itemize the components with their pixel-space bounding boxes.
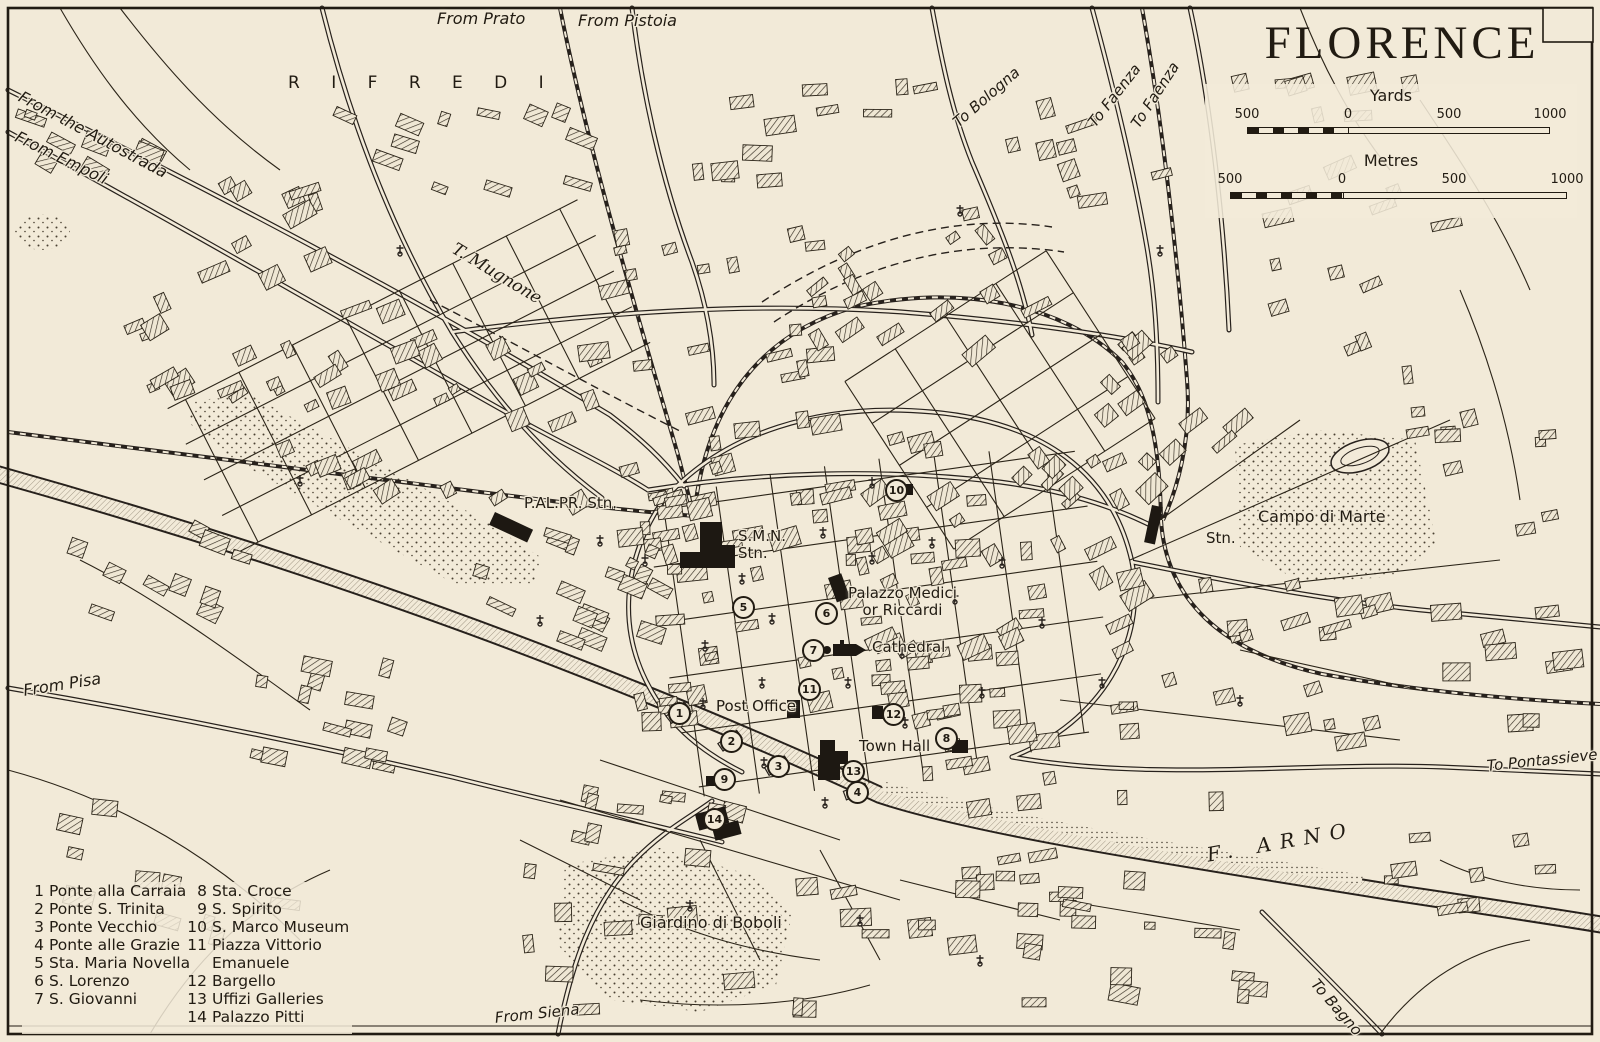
church-symbol (977, 955, 984, 966)
building-block (1028, 848, 1057, 863)
marker-1: 1 (668, 702, 691, 725)
building-block (301, 656, 332, 677)
building-block (56, 813, 83, 834)
scale-metres-label: Metres (1205, 151, 1577, 170)
building-block (598, 280, 629, 300)
map-title: FLORENCE (1262, 16, 1542, 70)
building-block (830, 885, 857, 899)
building-block (1051, 536, 1066, 553)
building-block (1136, 473, 1168, 505)
building-block (1552, 649, 1583, 670)
building-block (660, 795, 673, 804)
building-block (143, 575, 169, 596)
building-block (877, 323, 904, 346)
marker-12: 12 (882, 703, 905, 726)
marker-3: 3 (767, 755, 790, 778)
building-block (816, 105, 839, 116)
marker-7: 7 (802, 639, 825, 662)
building-block (709, 436, 721, 451)
building-block (1535, 605, 1559, 619)
building-block (153, 292, 171, 313)
building-block (1036, 98, 1055, 120)
label-town-hall: Town Hall (859, 738, 930, 755)
building-block (812, 296, 827, 308)
scale-tick: 500 (1218, 172, 1243, 187)
label-rifredi: R I F R E D I (288, 74, 557, 93)
building-block (1020, 873, 1040, 884)
label-campo-di-marte: Campo di Marte (1258, 508, 1386, 526)
building-block (793, 998, 803, 1016)
building-block (947, 935, 977, 955)
building-block (92, 799, 118, 817)
building-block (990, 688, 1005, 697)
building-block (304, 399, 319, 412)
building-block (1138, 453, 1156, 471)
building-block (484, 180, 512, 197)
building-block (580, 389, 599, 411)
label-palpr-stn: P.AL.PR. Stn. (524, 495, 617, 512)
marker-6: 6 (815, 602, 838, 625)
building-block (326, 386, 350, 409)
legend-column-1: 1Ponte alla Carraia 2Ponte S. Trinita 3P… (22, 882, 182, 1008)
corner-inset-box (1543, 8, 1593, 42)
building-block (578, 342, 611, 362)
building-block (486, 597, 515, 617)
building-block (662, 242, 678, 255)
building-block (1006, 137, 1021, 153)
building-block (1409, 832, 1430, 842)
building-block (942, 557, 968, 570)
church-symbol (759, 677, 766, 688)
building-block (1119, 702, 1133, 709)
building-block (956, 881, 981, 898)
label-cathedral: Cathedral (872, 639, 945, 656)
building-block (1431, 217, 1463, 232)
building-block (1213, 688, 1235, 705)
building-block (805, 240, 825, 251)
legend-item: 5Sta. Maria Novella (22, 954, 182, 972)
building-block (802, 84, 827, 97)
legend-item: 4Ponte alle Grazie (22, 936, 182, 954)
building-block (796, 411, 810, 429)
road-inner (632, 8, 714, 385)
scale-bar (1247, 127, 1550, 134)
building-block (605, 567, 625, 582)
building-block (1402, 366, 1413, 384)
building-block (1304, 681, 1323, 697)
building-block (545, 966, 573, 982)
building-block (919, 920, 936, 930)
building-block (911, 552, 935, 564)
building-block (1328, 265, 1345, 280)
church-symbol (769, 613, 776, 624)
building-block (840, 908, 871, 927)
scale-yards-label: Yards (1205, 86, 1577, 105)
building-block (555, 903, 572, 922)
building-block (661, 544, 678, 565)
building-block (807, 277, 828, 297)
building-block (787, 226, 805, 243)
label-palazzo-medici: Palazzo Medici or Riccardi (848, 585, 957, 619)
scale-tick: 0 (1338, 172, 1346, 187)
marker-11: 11 (798, 678, 821, 701)
building-block (298, 685, 312, 704)
road-inner (1262, 912, 1382, 1034)
building-block (667, 564, 681, 574)
building-block (642, 712, 661, 731)
building-block (604, 921, 632, 936)
building-block (856, 557, 869, 576)
building-block (1179, 408, 1208, 434)
building-block (750, 566, 763, 581)
building-block (379, 658, 394, 678)
building-block (261, 747, 288, 767)
park-small-west (14, 214, 70, 250)
scale-tick: 1000 (1533, 107, 1566, 122)
building-block (67, 537, 88, 558)
building-block (477, 108, 500, 120)
legend-item: 13Uffizi Galleries (185, 990, 355, 1008)
legend-item: 1Ponte alla Carraia (22, 882, 182, 900)
building-block (1268, 299, 1289, 316)
building-block (1089, 566, 1112, 590)
church-symbol (1237, 695, 1244, 706)
legend-item: 3Ponte Vecchio (22, 918, 182, 936)
building-block (735, 619, 759, 632)
scale-tick: 1000 (1550, 172, 1583, 187)
building-block (1443, 461, 1463, 476)
building-block (1535, 864, 1556, 874)
building-block (996, 651, 1019, 666)
building-block (391, 134, 419, 154)
building-block (711, 161, 739, 181)
building-block (981, 544, 1003, 567)
legend-column-2: 8Sta. Croce 9S. Spirito 10S. Marco Museu… (185, 882, 355, 1026)
building-block (67, 847, 84, 860)
scale-tick: 500 (1235, 107, 1260, 122)
building-block (625, 269, 637, 281)
legend: 1Ponte alla Carraia 2Ponte S. Trinita 3P… (22, 882, 352, 1034)
building-block (1056, 139, 1076, 156)
building-block (619, 462, 639, 477)
church-symbol (820, 527, 827, 538)
building-block (1223, 932, 1236, 950)
scale-bar (1230, 192, 1567, 199)
building-block (913, 82, 938, 94)
building-block (862, 930, 889, 938)
building-block (924, 441, 943, 458)
building-block (962, 207, 980, 221)
legend-item: 11Piazza Vittorio (185, 936, 355, 954)
building-block (846, 554, 855, 565)
church-symbol (845, 677, 852, 688)
building-block (832, 667, 844, 679)
building-block (997, 853, 1020, 865)
church-symbol (822, 797, 829, 808)
church-symbol (397, 245, 404, 256)
building-block (1435, 429, 1461, 443)
church-symbol (1157, 245, 1164, 256)
church-symbol (1039, 617, 1046, 628)
scale-tick: 500 (1442, 172, 1467, 187)
scale-panel: Yards 500 0 500 1000 Metres 500 0 500 10… (1205, 84, 1577, 218)
building-block (281, 340, 296, 358)
building-block (1072, 916, 1096, 929)
building-block (1067, 185, 1080, 198)
building-block (1411, 406, 1425, 417)
building-block (907, 656, 929, 670)
building-block (838, 246, 854, 262)
marker-5: 5 (732, 596, 755, 619)
building-block (1285, 579, 1301, 592)
building-block (434, 393, 450, 406)
building-block (789, 324, 801, 336)
building-block (790, 492, 802, 505)
building-block (440, 481, 457, 498)
building-block (1334, 595, 1363, 617)
building-block (1124, 871, 1146, 890)
building-block (1022, 998, 1046, 1007)
building-block (988, 248, 1007, 265)
building-block (1485, 642, 1517, 660)
building-block (1117, 790, 1127, 804)
label-giardino-boboli: Giardino di Boboli (640, 914, 782, 932)
building-block (395, 113, 423, 135)
church-symbol (597, 535, 604, 546)
building-block (647, 578, 673, 599)
building-block (256, 675, 268, 688)
building-block (169, 573, 192, 596)
building-block (614, 229, 630, 247)
building-block (723, 972, 755, 990)
building-block (1019, 609, 1044, 619)
building-block (1323, 619, 1352, 634)
church-symbol (739, 573, 746, 584)
building-block (304, 247, 332, 272)
marker-9: 9 (713, 768, 736, 791)
building-block (1324, 719, 1335, 731)
building-block (1541, 510, 1558, 522)
building-block (340, 300, 371, 319)
building-block (1209, 792, 1223, 811)
building-block (727, 257, 740, 273)
scale-yards-bar: 500 0 500 1000 (1205, 107, 1577, 141)
building-block (1270, 258, 1281, 271)
building-block (887, 432, 904, 446)
building-block (548, 412, 576, 433)
building-block (1469, 867, 1484, 882)
building-block (345, 692, 375, 709)
building-block (1406, 426, 1429, 438)
road-inner (932, 8, 1032, 335)
building-block (697, 264, 710, 274)
building-block (524, 863, 537, 878)
building-block (376, 299, 405, 324)
building-block (1195, 928, 1222, 938)
building-block (617, 804, 643, 814)
building-block (1112, 641, 1133, 659)
marker-2: 2 (720, 730, 743, 753)
marker-14: 14 (703, 808, 726, 831)
building-block (1058, 886, 1083, 898)
label-stn-east: Stn. (1206, 530, 1236, 547)
church-symbol (642, 555, 649, 566)
building-block (929, 567, 944, 586)
label-post-office: Post Office (716, 698, 796, 715)
building-block (1043, 771, 1057, 785)
legend-item: 8Sta. Croce (185, 882, 355, 900)
legend-item: 14Palazzo Pitti (185, 1008, 355, 1026)
building-block (966, 799, 991, 819)
building-block (1017, 794, 1042, 811)
building-block (388, 717, 408, 736)
building-block (959, 684, 981, 703)
building-block (89, 604, 115, 621)
building-block (1102, 453, 1126, 472)
building-block (729, 94, 754, 109)
building-block (1430, 603, 1461, 621)
building-block (896, 79, 909, 95)
building-block (524, 104, 549, 127)
building-block (1020, 542, 1032, 560)
building-block (372, 149, 403, 170)
building-block (232, 236, 252, 254)
building-block (1144, 922, 1155, 929)
building-block (552, 103, 571, 122)
building-block (1539, 430, 1556, 440)
building-block (523, 935, 535, 953)
building-block (996, 871, 1014, 881)
building-block (1515, 522, 1535, 536)
building-block (1094, 403, 1118, 427)
building-block (692, 163, 703, 180)
building-block (431, 182, 448, 195)
building-block (566, 127, 598, 150)
building-block (880, 681, 905, 695)
building-block (563, 176, 592, 192)
building-block (812, 509, 827, 523)
building-block (668, 682, 691, 693)
building-block (863, 109, 891, 117)
building-block (1057, 159, 1080, 182)
building-block (684, 848, 711, 867)
building-block (927, 482, 959, 511)
building-block (1086, 454, 1100, 468)
building-block (1085, 536, 1117, 560)
building-block (1223, 408, 1253, 437)
building-block (1363, 715, 1381, 731)
legend-item: 7S. Giovanni (22, 990, 182, 1008)
marker-4: 4 (846, 781, 869, 804)
legend-item: 12Bargello (185, 972, 355, 990)
building-block (967, 495, 987, 507)
marker-13: 13 (842, 760, 865, 783)
building-block (685, 407, 715, 425)
building-block (764, 115, 796, 136)
legend-item-continuation: Emanuele (185, 954, 355, 972)
building-block (1283, 712, 1312, 735)
building-block (1036, 139, 1057, 160)
legend-item: 6S. Lorenzo (22, 972, 182, 990)
building-block (878, 501, 907, 520)
building-block (617, 527, 644, 547)
map-page: FLORENCE Yards 500 0 500 1000 Metres 500… (0, 0, 1600, 1042)
building-block (734, 421, 761, 439)
legend-item: 10S. Marco Museum (185, 918, 355, 936)
building-block (1391, 861, 1418, 878)
building-block (1460, 409, 1478, 428)
scale-tick: 0 (1344, 107, 1352, 122)
building-block (1108, 983, 1140, 1006)
building-block (1237, 989, 1249, 1003)
building-block (1151, 168, 1172, 180)
building-block (1018, 903, 1038, 917)
building-block (688, 343, 710, 355)
building-block (1523, 714, 1539, 728)
building-block (1077, 192, 1107, 208)
building-block (1111, 968, 1132, 986)
building-block (656, 614, 685, 626)
building-block (556, 581, 585, 604)
building-block (1162, 672, 1177, 687)
building-block (943, 703, 960, 717)
building-block (1023, 943, 1042, 960)
building-block (1335, 732, 1367, 751)
building-block (314, 364, 341, 387)
building-block (757, 173, 783, 188)
scale-tick: 500 (1437, 107, 1462, 122)
building-block (1028, 584, 1047, 600)
building-block (946, 231, 960, 244)
building-block (855, 528, 874, 545)
building-block (250, 749, 263, 760)
scale-metres-bar: 500 0 500 1000 (1205, 172, 1577, 206)
marker-10: 10 (885, 479, 908, 502)
building-block (438, 111, 451, 126)
building-block (585, 823, 602, 844)
church-symbol (929, 537, 936, 548)
building-block (876, 659, 891, 672)
label-from-prato: From Prato (437, 10, 525, 28)
building-block (1101, 374, 1121, 394)
label-from-pistoia: From Pistoia (578, 12, 677, 30)
building-block (1513, 833, 1529, 847)
building-block (633, 360, 652, 372)
marker-8: 8 (935, 727, 958, 750)
building-block (975, 224, 995, 245)
building-block (796, 877, 819, 896)
building-block (742, 145, 772, 162)
building-block (922, 766, 932, 780)
building-block (1199, 577, 1213, 593)
building-block (1120, 723, 1140, 739)
building-block (955, 539, 980, 558)
building-block (614, 245, 627, 255)
building-block (702, 591, 713, 603)
building-block (1007, 723, 1037, 745)
building-block (1281, 612, 1311, 630)
building-block (233, 345, 257, 366)
label-smn-stn: S.M.N. Stn. (738, 528, 786, 562)
building-block (682, 524, 698, 542)
building-block (198, 261, 230, 284)
building-block (103, 562, 126, 584)
church-symbol (537, 615, 544, 626)
building-block (1360, 276, 1383, 293)
building-block (835, 317, 864, 343)
building-block (1212, 430, 1237, 453)
legend-item: 9S. Spirito (185, 900, 355, 918)
